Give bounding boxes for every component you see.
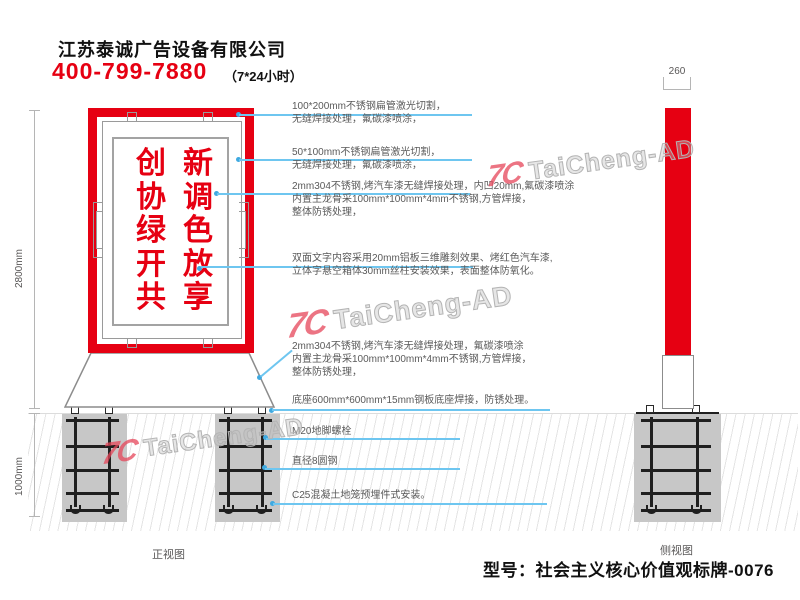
side-view-sign-body (665, 108, 691, 355)
annotation-panel-steel: 2mm304不锈钢,烤汽车漆无缝焊接处理，内凹20mm,氟碳漆喷涂 内置主龙骨采… (292, 180, 574, 219)
sign-char: 创 (133, 147, 169, 181)
annotation-lettering: 双面文字内容采用20mm铝板三维雕刻效果、烤红色汽车漆, 立体字悬空箱体30mm… (292, 252, 553, 278)
rebar-rung (66, 469, 119, 472)
drawing-sheet: 江苏泰诚广告设备有限公司 400-799-7880 （7*24小时） 2800m… (0, 0, 800, 600)
leader-line (273, 503, 547, 505)
leader-line (272, 409, 550, 411)
watermark: 7C TaiCheng-AD (284, 276, 515, 346)
rebar-rung (219, 492, 272, 495)
sign-char: 开 (133, 248, 169, 282)
lattice-tab-top (127, 112, 137, 122)
sign-char: 享 (180, 281, 216, 315)
front-view-label: 正视图 (152, 546, 185, 562)
phone-number: 400-799-7880 (52, 58, 207, 85)
sign-char: 协 (133, 181, 169, 215)
rebar-rung (641, 492, 711, 495)
model-number: 型号：社会主义核心价值观标牌-0076 (483, 556, 774, 581)
leader-line (265, 468, 460, 470)
sign-text-column-left: 创 协 绿 开 共 (133, 147, 169, 315)
annotation-concrete: C25混凝土地笼预埋件式安装。 (292, 489, 430, 502)
dim-label-1000: 1000mm (14, 434, 25, 496)
dim-label-260: 260 (659, 66, 695, 77)
lattice-tab-bottom (203, 338, 213, 348)
annotation-base-plate: 底座600mm*600mm*15mm钢板底座焊接，防锈处理。 (292, 394, 534, 407)
annotation-base-steel: 2mm304不锈钢,烤汽车漆无缝焊接处理，氟碳漆喷涂 内置主龙骨采100mm*1… (292, 340, 531, 379)
sign-char: 新 (180, 147, 216, 181)
anchor-bolt (646, 405, 654, 413)
dim-tick (29, 413, 40, 414)
rebar-rung (641, 419, 711, 422)
service-hours: （7*24小时） (224, 66, 303, 85)
annotation-top-tube: 100*200mm不锈钢扁管激光切割， 无缝焊接处理，氟碳漆喷涂， (292, 100, 446, 126)
rebar-rung (641, 445, 711, 448)
rebar-rung (66, 492, 119, 495)
base-trapezoid (64, 352, 276, 409)
annotation-inner-tube: 50*100mm不锈钢扁管激光切割， 无缝焊接处理，氟碳漆喷涂， (292, 146, 440, 172)
dim-line-2800 (34, 110, 35, 408)
rebar-rung (66, 445, 119, 448)
lattice-handle-left-inner (96, 211, 103, 249)
side-view-pedestal (662, 355, 694, 409)
rebar-rung (219, 445, 272, 448)
dim-tick (29, 408, 40, 409)
lattice-tab-top (203, 112, 213, 122)
dim-line-260 (663, 89, 691, 90)
sign-char: 共 (133, 281, 169, 315)
rebar-rung (641, 469, 711, 472)
leader-line (266, 438, 460, 440)
rebar-rung (219, 419, 272, 422)
lattice-handle-right-inner (239, 211, 246, 249)
dim-tick (29, 110, 40, 111)
sign-text-column-right: 新 调 色 放 享 (180, 147, 216, 315)
dim-label-2800: 2800mm (14, 226, 25, 288)
sign-char: 色 (180, 214, 216, 248)
sign-char: 绿 (133, 214, 169, 248)
dim-tick (29, 516, 40, 517)
annotation-anchor-bolt: M20地脚螺栓 (292, 425, 351, 438)
dim-line-1000 (34, 413, 35, 517)
sign-char: 放 (180, 248, 216, 282)
lattice-tab-bottom (127, 338, 137, 348)
sign-char: 调 (180, 181, 216, 215)
rebar-rung (66, 419, 119, 422)
annotation-round-steel: 直径8圆钢 (292, 455, 338, 468)
